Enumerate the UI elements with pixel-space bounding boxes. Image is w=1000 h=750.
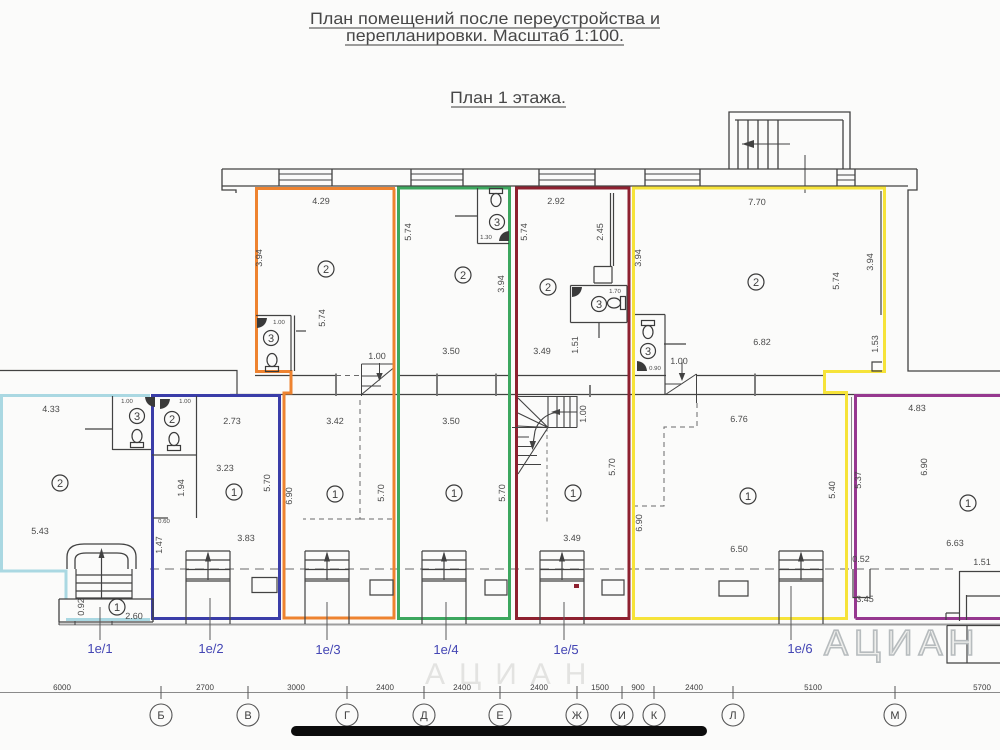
svg-text:И: И (618, 710, 626, 722)
svg-text:2: 2 (460, 270, 466, 282)
svg-text:1: 1 (965, 498, 971, 510)
svg-text:1е/3: 1е/3 (315, 642, 340, 657)
svg-text:План помещений после переустро: План помещений после переустройства и (310, 10, 660, 28)
svg-text:5.70: 5.70 (497, 484, 507, 502)
svg-text:2400: 2400 (685, 683, 703, 692)
svg-text:План 1 этажа.: План 1 этажа. (450, 89, 566, 107)
svg-text:0.52: 0.52 (852, 554, 870, 564)
svg-text:5.70: 5.70 (607, 458, 617, 476)
svg-text:Г: Г (344, 710, 350, 722)
svg-text:5.70: 5.70 (262, 474, 272, 492)
svg-text:1.00: 1.00 (368, 351, 386, 361)
svg-text:6.50: 6.50 (730, 544, 748, 554)
svg-text:5.74: 5.74 (831, 272, 841, 290)
svg-text:2400: 2400 (376, 683, 394, 692)
svg-text:3.49: 3.49 (563, 533, 581, 543)
svg-text:1: 1 (332, 489, 338, 501)
svg-text:1е/5: 1е/5 (553, 642, 578, 657)
svg-text:3: 3 (596, 299, 602, 311)
svg-text:Л: Л (729, 710, 736, 722)
svg-text:1е/2: 1е/2 (198, 641, 223, 656)
svg-text:3.94: 3.94 (865, 253, 875, 271)
svg-text:3.83: 3.83 (237, 533, 255, 543)
svg-text:2.92: 2.92 (547, 196, 565, 206)
svg-text:Е: Е (496, 710, 503, 722)
svg-text:1.00: 1.00 (121, 398, 133, 405)
svg-text:3.49: 3.49 (533, 346, 551, 356)
svg-text:6.90: 6.90 (919, 458, 929, 476)
svg-text:3.94: 3.94 (496, 275, 506, 293)
svg-text:2700: 2700 (196, 683, 214, 692)
svg-text:1.51: 1.51 (570, 336, 580, 354)
svg-text:3: 3 (134, 411, 140, 423)
svg-text:1е/1: 1е/1 (87, 641, 112, 656)
svg-text:5.37: 5.37 (853, 471, 863, 489)
svg-text:7.70: 7.70 (748, 197, 766, 207)
svg-text:1.00: 1.00 (179, 398, 191, 405)
svg-text:2.73: 2.73 (223, 416, 241, 426)
svg-text:1.30: 1.30 (480, 234, 492, 241)
svg-text:6.90: 6.90 (634, 514, 644, 532)
svg-text:3.94: 3.94 (633, 249, 643, 267)
svg-text:5.74: 5.74 (403, 223, 413, 241)
svg-text:2.45: 2.45 (595, 223, 605, 241)
svg-text:1е/6: 1е/6 (787, 641, 812, 656)
svg-text:5100: 5100 (804, 683, 822, 692)
svg-text:6.63: 6.63 (946, 538, 964, 548)
svg-text:6.82: 6.82 (753, 337, 771, 347)
svg-text:5.74: 5.74 (519, 223, 529, 241)
svg-text:3.42: 3.42 (326, 416, 344, 426)
svg-text:3.23: 3.23 (216, 463, 234, 473)
svg-text:3.50: 3.50 (442, 346, 460, 356)
svg-text:3.94: 3.94 (254, 249, 264, 267)
svg-text:1: 1 (114, 602, 120, 614)
svg-text:1.53: 1.53 (870, 335, 880, 353)
svg-text:0.60: 0.60 (158, 518, 170, 525)
svg-text:1: 1 (451, 488, 457, 500)
svg-text:1.00: 1.00 (670, 356, 688, 366)
svg-text:Б: Б (157, 710, 164, 722)
svg-text:3000: 3000 (287, 683, 305, 692)
svg-text:перепланировки. Масштаб 1:100.: перепланировки. Масштаб 1:100. (346, 27, 624, 45)
svg-text:3: 3 (645, 346, 651, 358)
svg-text:1.70: 1.70 (609, 288, 621, 295)
svg-text:Д: Д (420, 710, 428, 722)
svg-text:2: 2 (323, 264, 329, 276)
svg-text:АЦИАН: АЦИАН (824, 622, 981, 663)
svg-text:6000: 6000 (53, 683, 71, 692)
svg-text:4.83: 4.83 (908, 403, 926, 413)
svg-text:1е/4: 1е/4 (433, 642, 458, 657)
svg-text:3.45: 3.45 (856, 594, 874, 604)
svg-text:5.74: 5.74 (317, 309, 327, 327)
svg-text:5.43: 5.43 (31, 526, 49, 536)
svg-text:1.94: 1.94 (176, 479, 186, 497)
svg-text:1.51: 1.51 (973, 557, 991, 567)
svg-text:1: 1 (570, 488, 576, 500)
svg-text:Ж: Ж (572, 710, 582, 722)
svg-text:6.76: 6.76 (730, 414, 748, 424)
svg-text:4.29: 4.29 (312, 196, 330, 206)
svg-text:К: К (651, 710, 658, 722)
svg-text:1.00: 1.00 (273, 319, 285, 326)
svg-text:М: М (890, 710, 899, 722)
svg-text:3: 3 (268, 333, 274, 345)
svg-text:В: В (244, 710, 251, 722)
svg-text:1.00: 1.00 (578, 405, 588, 423)
svg-text:3: 3 (494, 217, 500, 229)
svg-text:1: 1 (231, 487, 237, 499)
svg-text:5700: 5700 (973, 683, 991, 692)
svg-text:0.92: 0.92 (76, 598, 86, 616)
svg-text:1: 1 (745, 491, 751, 503)
svg-text:2.60: 2.60 (125, 611, 143, 621)
svg-text:АЦИАН: АЦИАН (425, 658, 600, 691)
svg-text:6.90: 6.90 (284, 487, 294, 505)
svg-text:2: 2 (169, 414, 175, 426)
svg-text:5.70: 5.70 (376, 484, 386, 502)
svg-text:900: 900 (631, 683, 645, 692)
svg-text:3.50: 3.50 (442, 416, 460, 426)
svg-text:5.40: 5.40 (827, 481, 837, 499)
svg-text:2: 2 (753, 277, 759, 289)
svg-text:4.33: 4.33 (42, 404, 60, 414)
svg-text:2: 2 (545, 282, 551, 294)
svg-text:1.47: 1.47 (154, 536, 164, 554)
svg-text:0.90: 0.90 (649, 365, 661, 372)
svg-text:2: 2 (57, 478, 63, 490)
